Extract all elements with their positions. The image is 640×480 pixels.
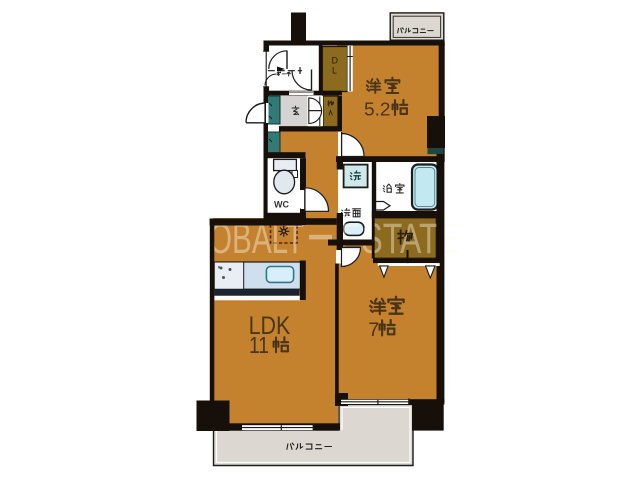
svg-text:L: L bbox=[332, 66, 337, 76]
svg-text:D: D bbox=[332, 56, 339, 66]
svg-text:11: 11 bbox=[249, 332, 269, 358]
svg-text:7: 7 bbox=[368, 319, 379, 341]
svg-text:5.2: 5.2 bbox=[364, 98, 391, 119]
svg-text:WC: WC bbox=[274, 200, 289, 210]
